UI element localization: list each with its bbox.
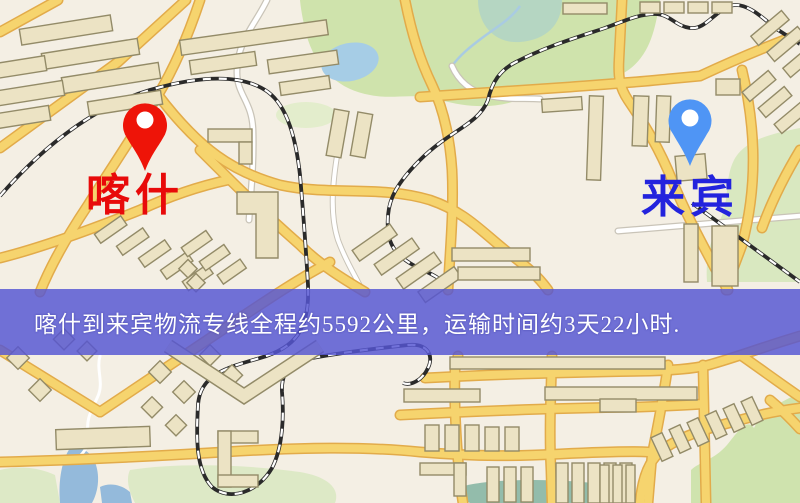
route-info-banner: 喀什到来宾物流专线全程约5592公里，运输时间约3天22小时. [0, 289, 800, 355]
origin-label: 喀什 [86, 174, 184, 218]
route-map-image: 喀什 来宾 喀什到来宾物流专线全程约5592公里，运输时间约3天22小时. [0, 0, 800, 503]
map-graphic [0, 0, 800, 503]
destination-label: 来宾 [641, 176, 739, 220]
origin-pin-hole [137, 112, 154, 129]
destination-pin-hole [682, 110, 699, 127]
route-info-text: 喀什到来宾物流专线全程约5592公里，运输时间约3天22小时. [34, 305, 680, 339]
